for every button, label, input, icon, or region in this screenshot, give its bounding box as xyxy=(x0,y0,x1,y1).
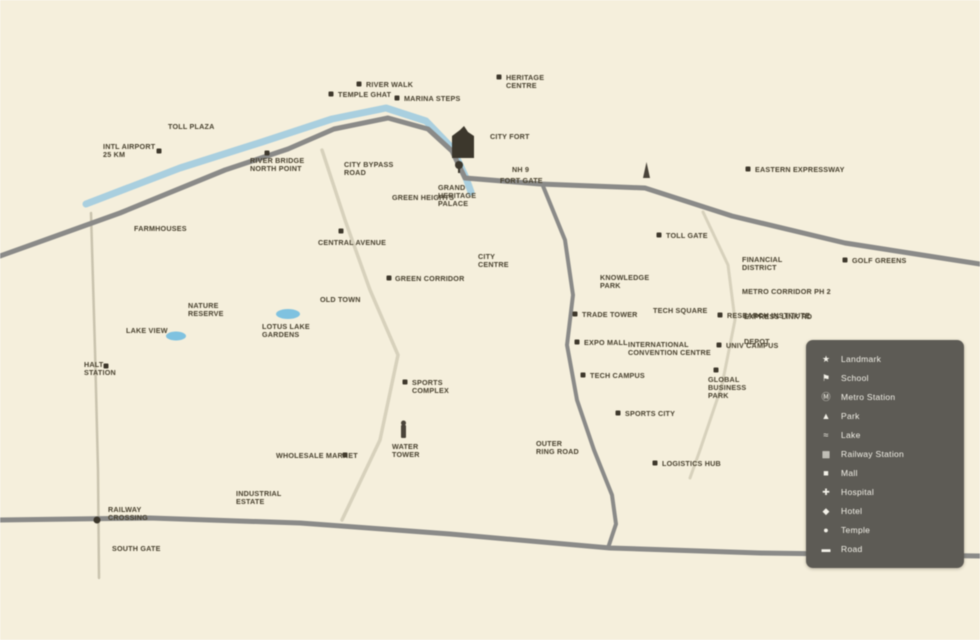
map-marker xyxy=(573,312,578,317)
map-marker xyxy=(387,276,392,281)
map-marker xyxy=(403,380,408,385)
map-label: EXPRESS LINK RD xyxy=(744,312,812,321)
map-label: WHOLESALE MARKET xyxy=(276,451,358,460)
fort-building-icon xyxy=(452,126,474,158)
map-label: FARMHOUSES xyxy=(134,224,187,233)
legend-item: ▬Road xyxy=(818,539,952,558)
road-central-road xyxy=(543,186,616,548)
map-marker xyxy=(329,92,334,97)
legend-item: ★Landmark xyxy=(818,350,952,369)
hotel-icon: ◆ xyxy=(818,506,834,516)
map-label: NATURERESERVE xyxy=(188,301,224,318)
map-label: GOLF GREENS xyxy=(852,256,907,265)
map-label: LOTUS LAKEGARDENS xyxy=(262,322,310,339)
map-label: SOUTH GATE xyxy=(112,544,161,553)
map-label: HALTSTATION xyxy=(84,360,116,377)
map-marker xyxy=(718,313,723,318)
legend-label: Road xyxy=(841,544,863,554)
map-label: EXPO MALL xyxy=(584,338,628,347)
map-marker xyxy=(575,340,580,345)
legend-item: ✚Hospital xyxy=(818,482,952,501)
legend-item: ⓂMetro Station xyxy=(818,388,952,407)
temple-icon: ● xyxy=(818,525,834,535)
map-label: TECH SQUARE xyxy=(653,306,708,315)
map-label: INTL AIRPORT25 KM xyxy=(103,142,156,159)
road-icon: ▬ xyxy=(818,544,834,554)
map-label: SPORTS CITY xyxy=(625,409,675,418)
map-label: OLD TOWN xyxy=(320,295,361,304)
map-marker xyxy=(395,96,400,101)
legend-label: Railway Station xyxy=(841,449,904,459)
map-marker xyxy=(157,149,162,154)
legend-item: ⚑School xyxy=(818,369,952,388)
map-label: TOLL GATE xyxy=(666,231,708,240)
map-label: SPORTSCOMPLEX xyxy=(412,378,449,395)
map-label: CITY FORT xyxy=(490,132,530,141)
map-marker xyxy=(497,75,502,80)
map-label: RAILWAYCROSSING xyxy=(108,505,148,522)
map-label: OUTERRING ROAD xyxy=(536,439,579,456)
park-icon: ▲ xyxy=(818,411,834,421)
map-label: CITYCENTRE xyxy=(478,252,509,269)
legend-label: Metro Station xyxy=(841,392,895,402)
road-west-highway xyxy=(0,118,465,256)
map-marker xyxy=(653,461,658,466)
road-inner-link-road xyxy=(322,150,398,520)
map-label: FINANCIALDISTRICT xyxy=(742,255,783,272)
map-label: INDUSTRIALESTATE xyxy=(236,489,282,506)
legend-item: ≈Lake xyxy=(818,426,952,445)
legend-label: Lake xyxy=(841,430,861,440)
lake-west-lake xyxy=(166,332,186,341)
legend-label: Temple xyxy=(841,525,870,535)
map-label: TRADE TOWER xyxy=(582,310,638,319)
map-label: TECH CAMPUS xyxy=(590,371,645,380)
map-label: METRO CORRIDOR PH 2 xyxy=(742,287,831,296)
map-marker xyxy=(581,373,586,378)
map-label: HERITAGECENTRE xyxy=(506,73,544,90)
lake-icon: ≈ xyxy=(818,430,834,440)
lake-central-lake xyxy=(276,309,300,319)
map-label: MARINA STEPS xyxy=(404,94,460,103)
location-map: TEMPLE GHATRIVER WALKMARINA STEPSHERITAG… xyxy=(0,0,980,640)
water-tower-icon xyxy=(401,425,406,438)
rail-crossing-dot-icon xyxy=(94,517,101,524)
map-marker xyxy=(339,229,344,234)
map-label: GREEN CORRIDOR xyxy=(395,274,465,283)
legend-label: Park xyxy=(841,411,860,421)
map-label: LAKE VIEW xyxy=(126,326,168,335)
legend-label: Hospital xyxy=(841,487,874,497)
legend-label: School xyxy=(841,373,869,383)
legend-item: ●Temple xyxy=(818,520,952,539)
map-marker xyxy=(265,151,270,156)
legend-item: ▲Park xyxy=(818,407,952,426)
map-label: TOLL PLAZA xyxy=(168,122,214,131)
map-marker xyxy=(657,233,662,238)
map-label: RIVER WALK xyxy=(366,80,414,89)
map-label: CITY BYPASSROAD xyxy=(344,160,393,177)
map-label: GLOBALBUSINESSPARK xyxy=(708,375,746,400)
map-label: KNOWLEDGEPARK xyxy=(600,273,649,290)
map-marker xyxy=(616,411,621,416)
map-label: RIVER BRIDGENORTH POINT xyxy=(250,156,304,173)
map-marker xyxy=(746,167,751,172)
map-label: LOGISTICS HUB xyxy=(662,459,721,468)
map-label: DEPOT xyxy=(744,337,770,346)
railway-icon: ▦ xyxy=(818,449,834,459)
legend-item: ■Mall xyxy=(818,463,952,482)
map-marker xyxy=(714,368,719,373)
monument-obelisk-icon xyxy=(643,162,650,178)
map-legend: ★Landmark⚑SchoolⓂMetro Station▲Park≈Lake… xyxy=(806,340,964,568)
legend-label: Hotel xyxy=(841,506,862,516)
map-marker xyxy=(717,343,722,348)
map-label: EASTERN EXPRESSWAY xyxy=(755,165,845,174)
landmark-icon: ★ xyxy=(818,354,834,364)
map-marker xyxy=(357,82,362,87)
hospital-icon: ✚ xyxy=(818,487,834,497)
map-marker xyxy=(843,258,848,263)
map-label: CENTRAL AVENUE xyxy=(318,238,386,247)
school-icon: ⚑ xyxy=(818,373,834,383)
map-label: INTERNATIONALCONVENTION CENTRE xyxy=(628,340,711,357)
mall-icon: ■ xyxy=(818,468,834,478)
map-label: TEMPLE GHAT xyxy=(338,90,392,99)
legend-item: ▦Railway Station xyxy=(818,445,952,464)
legend-item: ◆Hotel xyxy=(818,501,952,520)
map-label: WATERTOWER xyxy=(392,442,420,459)
legend-label: Mall xyxy=(841,468,858,478)
map-label: NH 9 xyxy=(512,165,529,174)
metro-icon: Ⓜ xyxy=(818,392,834,402)
legend-label: Landmark xyxy=(841,354,881,364)
junction-pin-stem xyxy=(458,165,460,173)
map-label: FORT GATE xyxy=(500,176,543,185)
water-tower-top-icon xyxy=(401,421,406,426)
